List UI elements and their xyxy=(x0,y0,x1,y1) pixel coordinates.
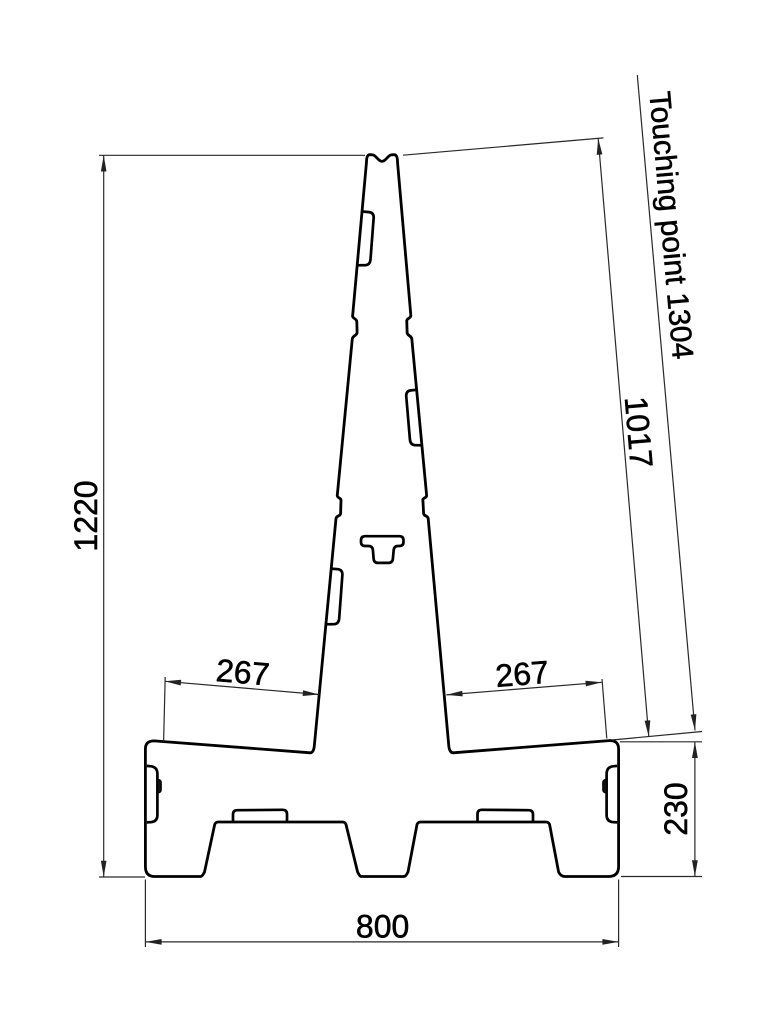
svg-text:267: 267 xyxy=(494,654,550,694)
svg-text:1017: 1017 xyxy=(618,395,660,469)
svg-text:800: 800 xyxy=(356,909,409,945)
svg-text:1220: 1220 xyxy=(68,480,104,551)
svg-text:267: 267 xyxy=(215,652,271,692)
svg-text:230: 230 xyxy=(658,782,694,835)
